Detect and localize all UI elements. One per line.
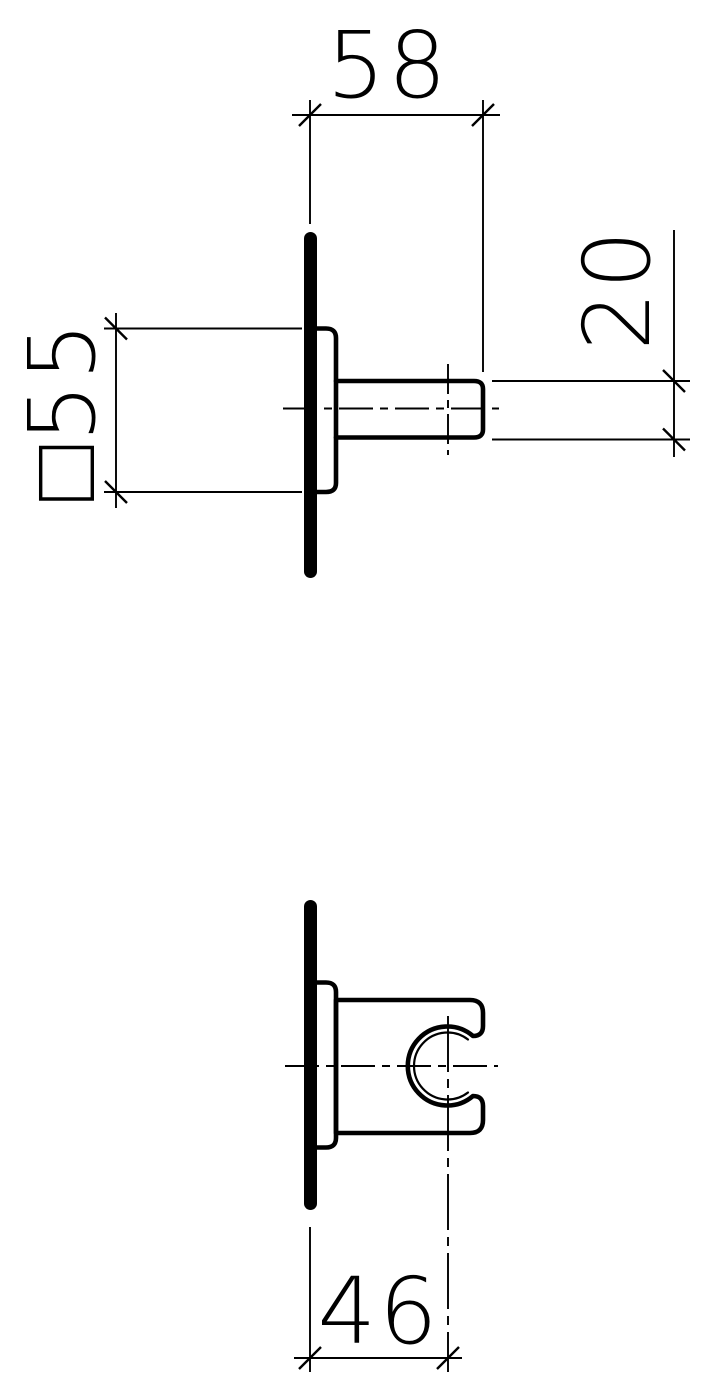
dimension-58: 58	[292, 12, 500, 372]
wall-plate-side-profile	[304, 232, 317, 578]
dimension-20: 20	[492, 227, 690, 457]
dim-55-label: □55	[9, 319, 116, 501]
wall-plate-front-profile	[304, 900, 317, 1210]
technical-drawing-canvas: 58 20 □55	[0, 0, 714, 1398]
dimension-46: 46	[294, 1227, 462, 1372]
dimension-55: □55	[9, 313, 302, 508]
dim-20-label: 20	[564, 227, 671, 350]
drawing-svg: 58 20 □55	[0, 0, 714, 1398]
dim-46-label: 46	[317, 1258, 440, 1365]
side-view	[283, 232, 499, 578]
dim-58-label: 58	[326, 12, 449, 119]
